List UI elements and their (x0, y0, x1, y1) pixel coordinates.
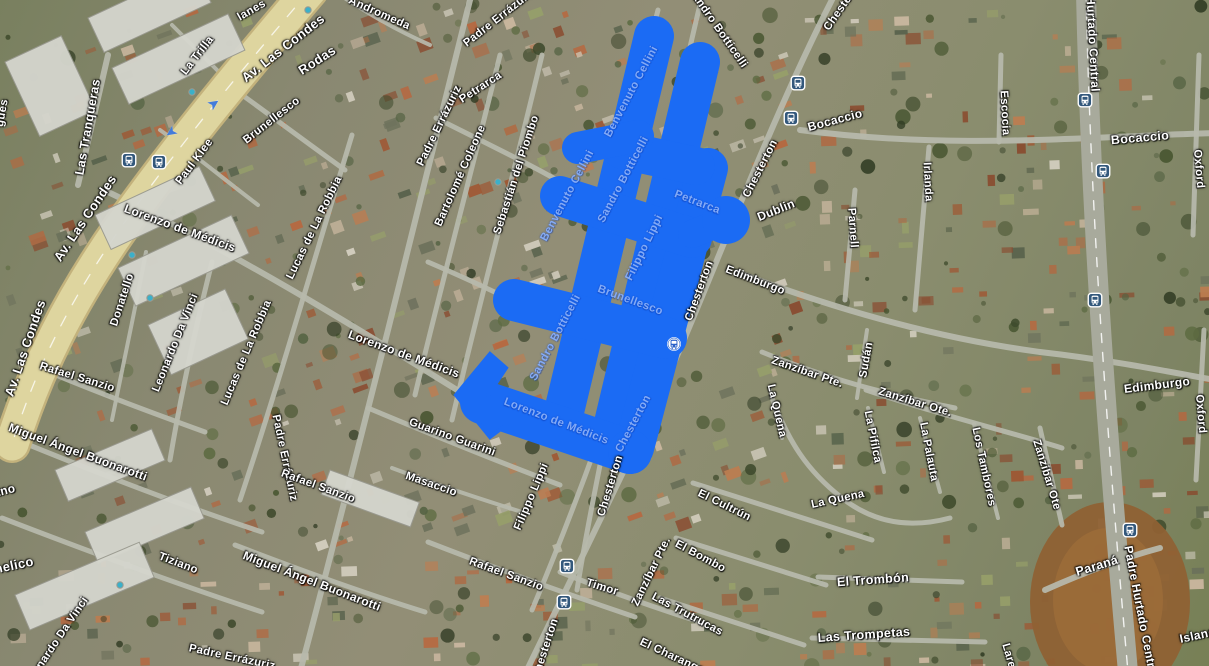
one-way-arrow-icon: ➤ (205, 94, 224, 114)
bus-stop-icon[interactable] (1123, 523, 1138, 538)
bus-stop-icon[interactable] (122, 153, 137, 168)
bus-stop-icon[interactable] (1078, 93, 1093, 108)
one-way-arrow-icon: ➤ (162, 122, 181, 142)
bus-stop-icon[interactable] (1088, 293, 1103, 308)
bus-stop-icon[interactable] (784, 111, 799, 126)
bus-stop-icon[interactable] (152, 155, 167, 170)
satellite-map-canvas[interactable]: lanesLa TrillaAv. Las CondesRodasAndrome… (0, 0, 1209, 666)
map-icons-layer: ➤➤ (0, 0, 1209, 666)
bus-stop-icon[interactable] (791, 76, 806, 91)
bus-stop-icon[interactable] (667, 337, 682, 352)
bus-stop-icon[interactable] (560, 559, 575, 574)
bus-stop-icon[interactable] (1096, 164, 1111, 179)
bus-stop-icon[interactable] (557, 595, 572, 610)
